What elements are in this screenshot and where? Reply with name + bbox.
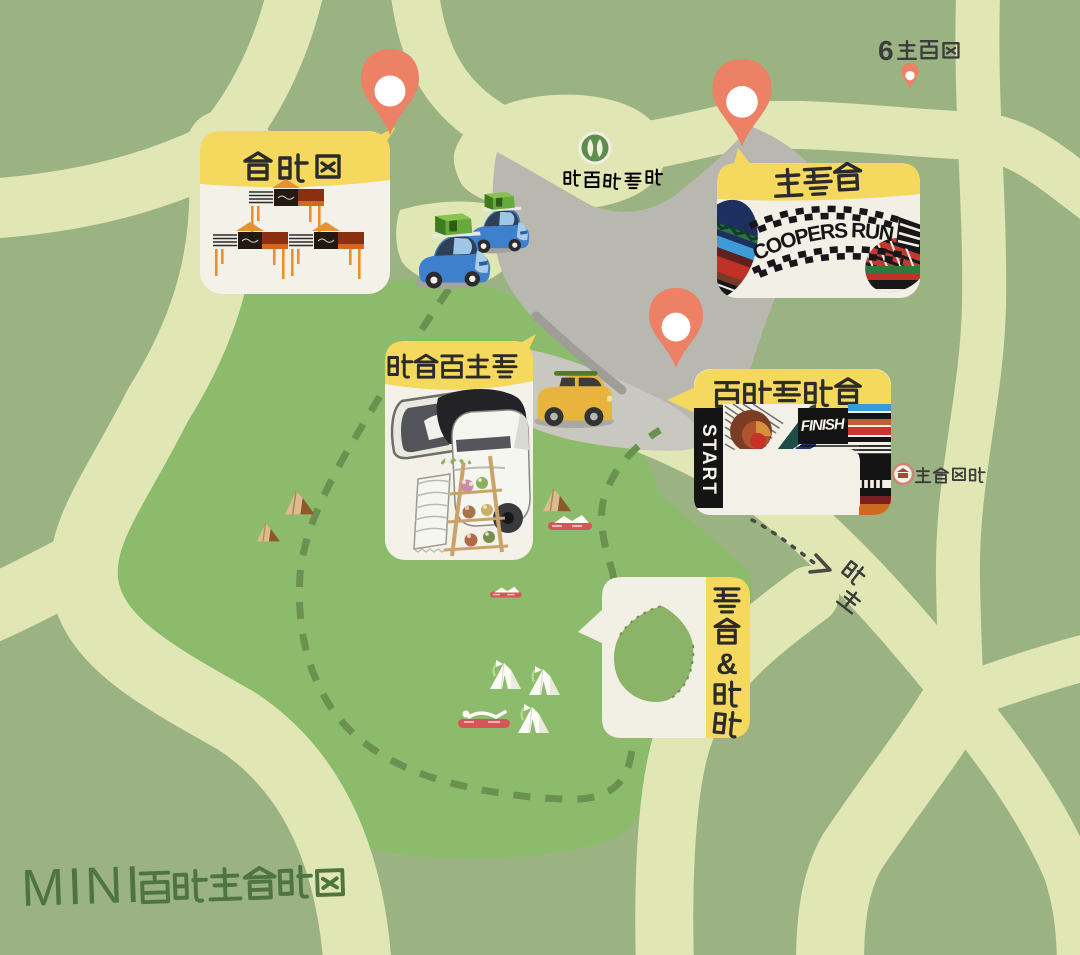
svg-text:FINISH: FINISH: [800, 416, 846, 435]
svg-text:MINI: MINI: [20, 856, 144, 918]
svg-text:6: 6: [878, 35, 894, 66]
svg-text:&: &: [716, 648, 738, 681]
svg-text:START: START: [698, 424, 719, 496]
